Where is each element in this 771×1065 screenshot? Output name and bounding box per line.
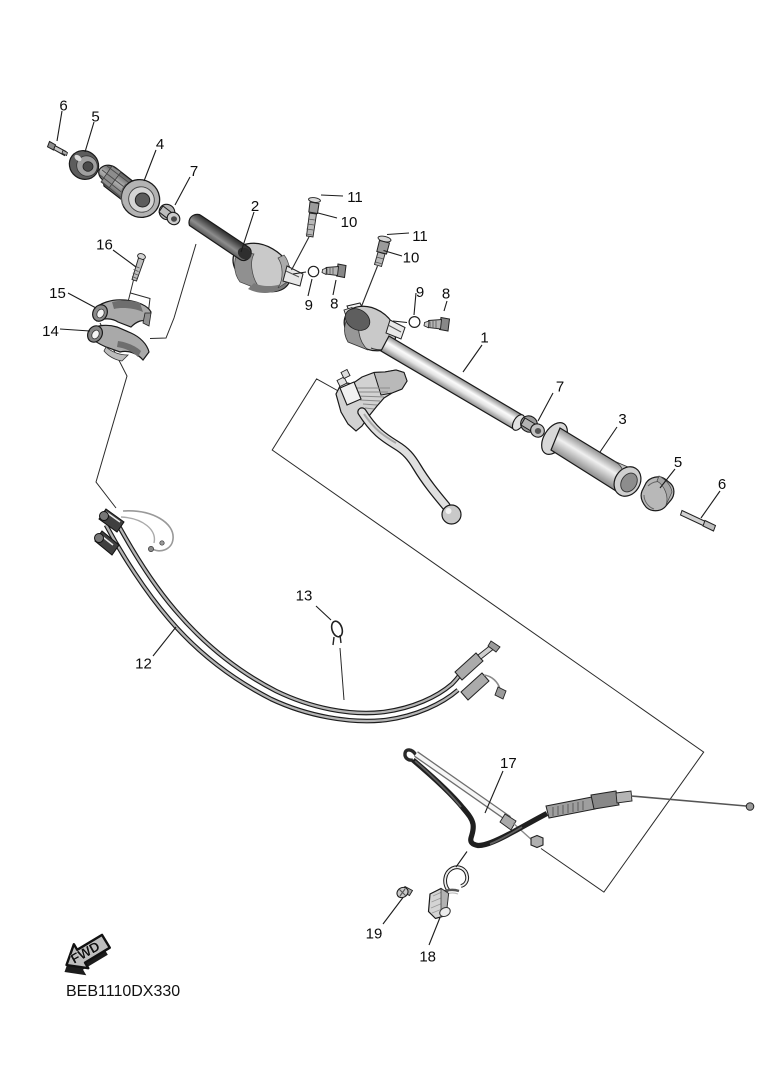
svg-text:13: 13	[296, 588, 313, 605]
svg-text:17: 17	[500, 755, 517, 772]
svg-text:5: 5	[674, 454, 682, 471]
svg-text:11: 11	[347, 189, 363, 206]
svg-text:19: 19	[366, 926, 383, 943]
svg-text:8: 8	[330, 296, 338, 313]
svg-text:15: 15	[49, 285, 66, 302]
svg-text:1: 1	[480, 330, 488, 347]
svg-text:2: 2	[251, 198, 259, 215]
svg-text:10: 10	[341, 214, 358, 231]
svg-text:12: 12	[135, 656, 152, 673]
svg-text:BEB1110DX330: BEB1110DX330	[66, 983, 180, 1000]
svg-text:14: 14	[42, 323, 59, 340]
svg-text:10: 10	[403, 250, 420, 267]
svg-text:9: 9	[305, 297, 313, 314]
svg-text:18: 18	[419, 948, 436, 965]
svg-text:16: 16	[96, 237, 113, 254]
svg-text:11: 11	[412, 228, 428, 245]
svg-text:7: 7	[190, 163, 198, 180]
svg-text:8: 8	[442, 286, 450, 303]
svg-text:7: 7	[556, 379, 564, 396]
svg-text:3: 3	[618, 411, 626, 428]
svg-text:4: 4	[156, 136, 164, 153]
svg-text:6: 6	[59, 98, 67, 115]
svg-text:6: 6	[718, 476, 726, 493]
svg-text:5: 5	[91, 109, 99, 126]
svg-text:9: 9	[416, 284, 424, 301]
